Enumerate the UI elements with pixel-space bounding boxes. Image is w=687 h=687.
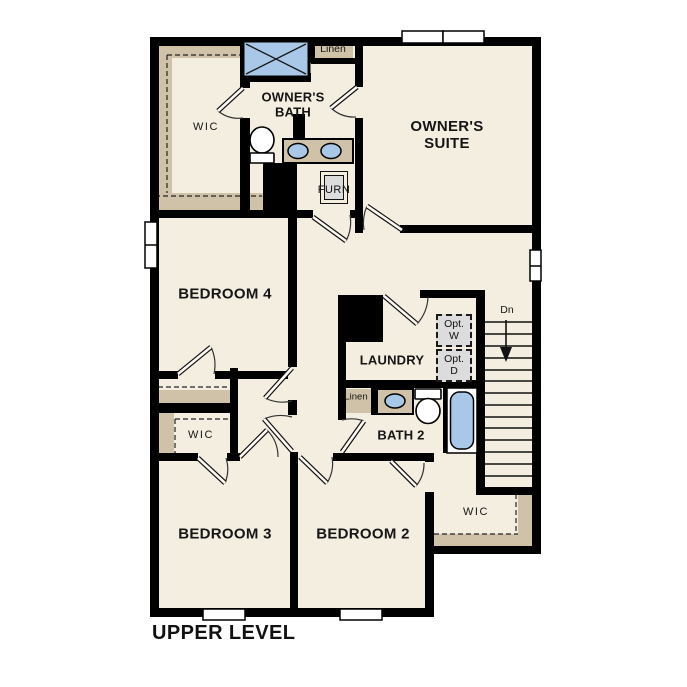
shower	[243, 41, 309, 77]
bedroom3-label: BEDROOM 3	[155, 527, 295, 544]
floor-plan-drawing	[0, 0, 687, 687]
owners-suite-label: OWNER'S SUITE	[392, 119, 502, 153]
wic-owners-label: WIC	[193, 121, 219, 133]
sink-icon	[385, 394, 405, 408]
window-owners-suite-top	[402, 31, 484, 43]
stairs-dn-label: Dn	[500, 305, 513, 317]
wic-bedroom2-label: WIC	[463, 506, 489, 518]
bedroom2-label: BEDROOM 2	[293, 527, 433, 544]
toilet-bath2	[415, 389, 441, 424]
optional-dryer-box: Opt. D	[436, 349, 472, 382]
floor-plan: Opt. W Opt. D Linen OWNER'S BATH WIC OWN…	[0, 0, 687, 687]
window-owners-suite-right	[530, 250, 541, 281]
owners-bath-label: OWNER'S BATH	[248, 90, 338, 119]
linen-upper-label: Linen	[320, 44, 346, 56]
optional-washer-label-line2: W	[449, 331, 459, 342]
linen-bath2-label: Linen	[344, 393, 367, 404]
wic-bedroom3-label: WIC	[188, 429, 214, 441]
vanity-owners-bath	[283, 139, 353, 163]
optional-washer-box: Opt. W	[436, 314, 472, 347]
optional-dryer-label-line1: Opt.	[444, 354, 464, 365]
toilet-owners-bath	[250, 127, 274, 163]
optional-washer-label-line1: Opt.	[444, 319, 464, 330]
bathtub	[447, 388, 477, 453]
laundry-label: LAUNDRY	[360, 354, 424, 369]
window-bedroom2	[340, 609, 382, 620]
window-bedroom3	[203, 609, 245, 620]
optional-dryer-label-line2: D	[450, 366, 458, 377]
window-bedroom4	[145, 222, 157, 268]
bath2-label: BATH 2	[377, 429, 424, 444]
bedroom4-label: BEDROOM 4	[155, 287, 295, 304]
vanity-bath2	[377, 389, 413, 414]
furnace-label: FURN	[318, 184, 351, 196]
plan-title: UPPER LEVEL	[152, 622, 295, 645]
